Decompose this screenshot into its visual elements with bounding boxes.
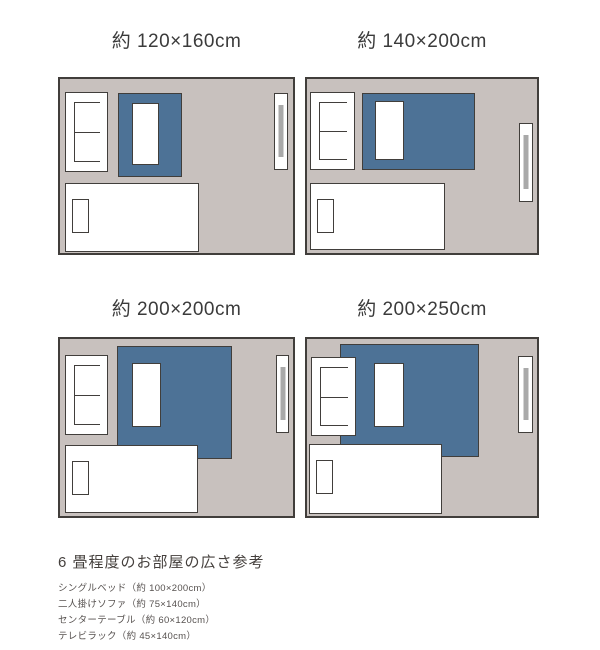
center-table	[132, 103, 159, 165]
single-bed	[310, 183, 445, 250]
diagram-title-120x160: 約 120×160cm	[58, 26, 295, 53]
single-bed	[65, 183, 199, 252]
room-diagram-200x200	[58, 337, 295, 518]
tv-rack	[274, 93, 288, 170]
center-table	[375, 101, 404, 160]
pillow	[317, 199, 334, 233]
rug-size-guide: 約 120×160cm 約 140×200cm 約 200×200cm 約 20…	[0, 0, 600, 650]
tv-strip	[524, 135, 529, 189]
sofa	[311, 357, 356, 436]
legend-item-tv-rack: テレビラック（約 45×140cm）	[58, 629, 265, 645]
legend-item-sofa: 二人掛けソファ（約 75×140cm）	[58, 597, 265, 613]
room-diagram-140x200	[305, 77, 539, 255]
legend-item-single-bed: シングルベッド（約 100×200cm）	[58, 581, 265, 597]
center-table	[132, 363, 161, 427]
sofa	[65, 92, 108, 172]
sofa	[65, 355, 108, 435]
tv-rack	[276, 355, 289, 433]
room-diagram-120x160	[58, 77, 295, 255]
single-bed	[65, 445, 198, 513]
pillow	[316, 460, 333, 494]
center-table	[374, 363, 404, 427]
single-bed	[309, 444, 442, 514]
legend: 6 畳程度のお部屋の広さ参考 シングルベッド（約 100×200cm） 二人掛け…	[58, 551, 265, 645]
room-diagram-200x250	[305, 337, 539, 518]
sofa-seats	[74, 102, 100, 162]
sofa-seats	[320, 367, 348, 426]
diagram-title-200x250: 約 200×250cm	[305, 294, 539, 321]
tv-strip	[523, 368, 528, 420]
pillow	[72, 461, 89, 495]
legend-heading: 6 畳程度のお部屋の広さ参考	[58, 551, 265, 572]
diagram-title-140x200: 約 140×200cm	[305, 26, 539, 53]
legend-items: シングルベッド（約 100×200cm） 二人掛けソファ（約 75×140cm）…	[58, 581, 265, 645]
sofa-seats	[319, 102, 347, 160]
rug	[340, 344, 479, 457]
tv-strip	[280, 367, 285, 420]
sofa-seats	[74, 365, 100, 425]
sofa	[310, 92, 355, 170]
tv-strip	[279, 105, 284, 157]
diagram-title-200x200: 約 200×200cm	[58, 294, 295, 321]
tv-rack	[518, 356, 533, 433]
pillow	[72, 199, 89, 233]
tv-rack	[519, 123, 533, 202]
legend-item-center-table: センターテーブル（約 60×120cm）	[58, 613, 265, 629]
